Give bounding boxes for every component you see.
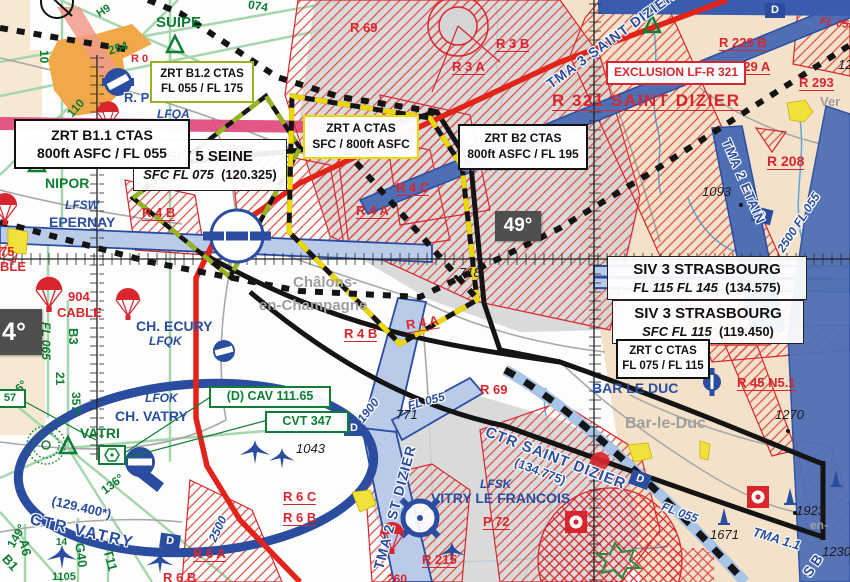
icao-lfok: LFOK — [145, 392, 178, 404]
airport-label-vatry: CH. VATRY — [115, 409, 188, 423]
elevation-1093: 1093 — [702, 185, 731, 198]
route-1105: 1105 — [52, 572, 76, 582]
icao-lfqk: LFQK — [149, 335, 182, 347]
elevation-1230: 1230 — [822, 545, 850, 558]
airway-class-d-badge: D — [765, 3, 785, 18]
elevation-771: 771 — [396, 408, 418, 421]
icao-lfsw: LFSW — [65, 199, 99, 211]
restricted-label-r4b-west: R 4 B — [142, 206, 175, 221]
airport-label-barleduc: BAR LE DUC — [592, 381, 678, 395]
restricted-label-r208: R 208 — [767, 154, 804, 170]
restricted-label-r6a: R 6 A — [193, 547, 226, 562]
city-fragment-en: en- — [810, 519, 828, 531]
prohibited-label-p72: P 72 — [483, 515, 510, 530]
restricted-label-r3a: R 3 A — [452, 60, 485, 75]
route-a6: A6 — [17, 538, 33, 557]
restricted-label-r6b: R 6 B — [283, 511, 316, 526]
city-chalons-line1: Châlons- — [293, 275, 357, 290]
restricted-label-r293: R 293 — [799, 76, 834, 91]
elevation-fragment-12: 12 — [838, 58, 850, 71]
restricted-label-fragment: R 0 — [131, 54, 148, 65]
restricted-label-r229b: R 229 B — [719, 36, 767, 51]
route-14: 14 — [56, 538, 67, 548]
restricted-label-r3b: R 3 B — [496, 37, 529, 52]
elevation-1270: 1270 — [775, 408, 804, 421]
route-21: 21 — [54, 372, 66, 385]
restricted-label-r45: R 45 N5.1 — [737, 376, 796, 391]
radial-357: 357° — [70, 392, 82, 417]
latitude-label: 49° — [495, 211, 541, 241]
cable-fragment-1: 75 — [0, 245, 14, 258]
zrt-b2-label: ZRT B2 CTAS 800ft ASFC / FL 195 — [458, 124, 588, 170]
airport-label-vitry: VITRY LE FRANCOIS — [431, 491, 570, 505]
waypoint-label-nipor: NIPOR — [45, 176, 89, 190]
siv3-upper-label: SIV 3 STRASBOURG FL 115 FL 145 (134.575) — [607, 256, 807, 300]
elevation-1043: 1043 — [296, 442, 325, 455]
airport-label-epernay: EPERNAY — [49, 215, 115, 229]
route-074: 074 — [247, 0, 269, 14]
restricted-label-r4b-south: R 4 B — [344, 327, 377, 342]
airport-label-ecury: CH. ECURY — [136, 319, 213, 333]
zrt-b12-label: ZRT B1.2 CTAS FL 055 / FL 175 — [150, 61, 254, 103]
restricted-label-r215: R 215 — [422, 553, 457, 568]
restricted-label-r4c: R 4 C — [396, 181, 429, 196]
elevation-1671: 1671 — [710, 528, 739, 541]
restricted-label-r6b-south: R 6 B — [163, 571, 196, 582]
restricted-label-r69: R 69 — [350, 21, 377, 34]
navaid-box-fragment: 57 — [0, 389, 26, 408]
zrt-a-label: ZRT A CTAS SFC / 800ft ASFC — [303, 115, 419, 159]
city-barleduc: Bar-le-Duc — [625, 416, 706, 432]
route-b3: B3 — [67, 328, 80, 345]
cav-navaid-box: (D) CAV 111.65 — [209, 386, 331, 408]
cable-height-label: 904 — [68, 290, 90, 303]
longitude-label: 4° — [0, 309, 42, 355]
zrt-c-label: ZRT C CTAS FL 075 / FL 115 — [616, 339, 710, 379]
restricted-label-260: 260 — [387, 573, 407, 582]
restricted-label-r69-south: R 69 — [480, 383, 507, 396]
cable-fragment-2: BLE — [0, 260, 26, 273]
restricted-label-r4a-north: R 4 A — [356, 204, 389, 219]
elevation-1923: 1923 — [796, 504, 825, 517]
restricted-label-r321: R 321 SAINT DIZIER — [552, 92, 741, 111]
route-10: 10 — [38, 50, 50, 63]
restricted-label-r6c: R 6 C — [283, 490, 316, 505]
exclusion-label: EXCLUSION LF-R 321 — [606, 61, 746, 85]
cable-label: CABLE — [57, 306, 102, 319]
elevation-718: 718 — [459, 266, 481, 279]
waypoint-label-suipe: SUIPE — [156, 15, 201, 30]
zrt-b11-label: ZRT B1.1 CTAS 800ft ASFC / FL 055 — [14, 119, 190, 169]
city-fragment-ver: Ver — [820, 95, 840, 108]
siv3-lower-label: SIV 3 STRASBOURG SFC FL 115 (119.450) — [612, 300, 804, 344]
city-chalons-line2: en-Champagne — [259, 298, 367, 313]
airway-class-d-badge: D — [159, 533, 181, 551]
cvt-navaid-box: CVT 347 — [265, 411, 349, 433]
waypoint-label-vatri: VATRI — [80, 426, 120, 440]
icao-lfsk: LFSK — [480, 478, 511, 490]
map-canvas[interactable]: ZRT B1.1 CTAS 800ft ASFC / FL 055 ZRT B1… — [0, 0, 850, 582]
route-g40: G40 — [73, 542, 89, 568]
